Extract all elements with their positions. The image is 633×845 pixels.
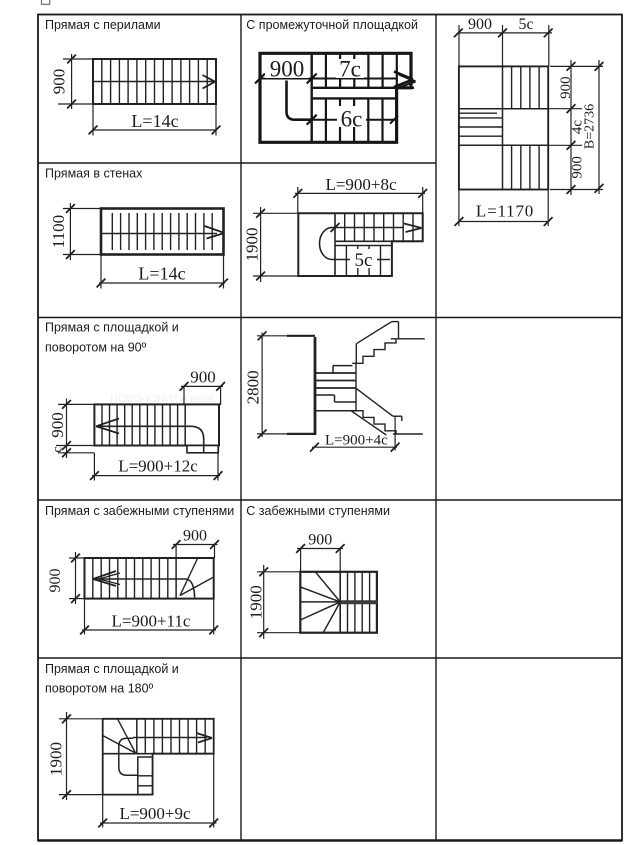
svg-text:900: 900: [183, 528, 207, 545]
svg-text:С промежуточной площадкой: С промежуточной площадкой: [246, 18, 418, 32]
svg-text:С забежными ступенями: С забежными ступенями: [246, 504, 390, 518]
svg-text:L=900+12c: L=900+12c: [118, 457, 198, 476]
svg-text:900: 900: [47, 569, 64, 593]
svg-text:900: 900: [558, 76, 574, 99]
svg-text:Прямая с перилами: Прямая с перилами: [45, 18, 161, 32]
svg-text:900: 900: [468, 16, 492, 33]
svg-text:5c: 5c: [355, 250, 373, 271]
svg-text:1900: 1900: [247, 585, 266, 619]
svg-text:L=900+4c: L=900+4c: [325, 433, 388, 449]
svg-text:1900: 1900: [243, 228, 262, 262]
svg-text:7c: 7c: [339, 57, 361, 82]
svg-text:Прямая с площадкой и: Прямая с площадкой и: [45, 662, 179, 676]
svg-text:900: 900: [190, 368, 216, 387]
svg-text:2800: 2800: [244, 370, 263, 404]
svg-text:L=900+9c: L=900+9c: [119, 804, 191, 823]
svg-text:c: c: [51, 446, 66, 452]
svg-text:Прямая с площадкой и: Прямая с площадкой и: [45, 321, 179, 335]
svg-text:900: 900: [270, 57, 305, 82]
svg-text:Прямая с забежными ступенями: Прямая с забежными ступенями: [45, 504, 234, 518]
svg-text:Прямая в стенах: Прямая в стенах: [45, 167, 143, 181]
svg-text:5c: 5c: [518, 16, 533, 33]
svg-text:900: 900: [570, 156, 586, 179]
svg-text:1900: 1900: [47, 742, 66, 776]
svg-text:НОВО-ЮНИТИ вход: НОВО-ЮНИТИ вход: [110, 393, 214, 405]
svg-text:900: 900: [50, 69, 69, 95]
svg-text:поворотом на 180º: поворотом на 180º: [45, 681, 154, 695]
svg-text:B=2736: B=2736: [583, 104, 598, 149]
svg-text:L=14c: L=14c: [138, 264, 185, 284]
svg-text:L=900+11c: L=900+11c: [112, 612, 191, 631]
svg-text:6c: 6c: [341, 107, 363, 132]
svg-text:L=14c: L=14c: [131, 111, 178, 131]
svg-text:L=1170: L=1170: [476, 202, 534, 221]
svg-text:900: 900: [308, 532, 332, 549]
svg-text:900: 900: [48, 412, 67, 438]
svg-text:1100: 1100: [49, 215, 68, 248]
svg-text:L=900+8c: L=900+8c: [325, 175, 397, 194]
svg-text:поворотом на 90º: поворотом на 90º: [45, 340, 147, 354]
